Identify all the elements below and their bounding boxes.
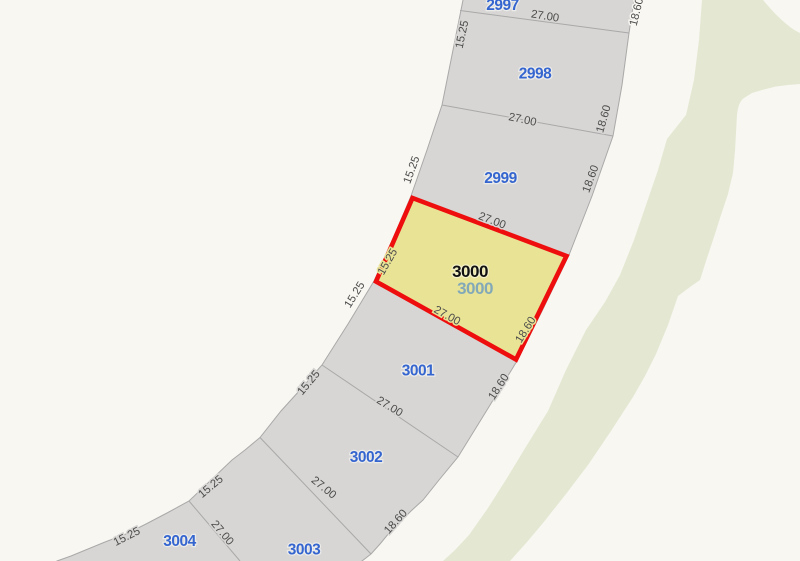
svg-text:2999: 2999 bbox=[484, 170, 517, 187]
svg-text:3004: 3004 bbox=[163, 533, 196, 550]
svg-text:2997: 2997 bbox=[486, 0, 518, 14]
svg-text:3000: 3000 bbox=[457, 279, 493, 298]
svg-text:3003: 3003 bbox=[288, 542, 321, 559]
svg-text:3001: 3001 bbox=[402, 363, 435, 380]
svg-text:2998: 2998 bbox=[519, 66, 552, 83]
svg-text:3002: 3002 bbox=[350, 449, 382, 466]
